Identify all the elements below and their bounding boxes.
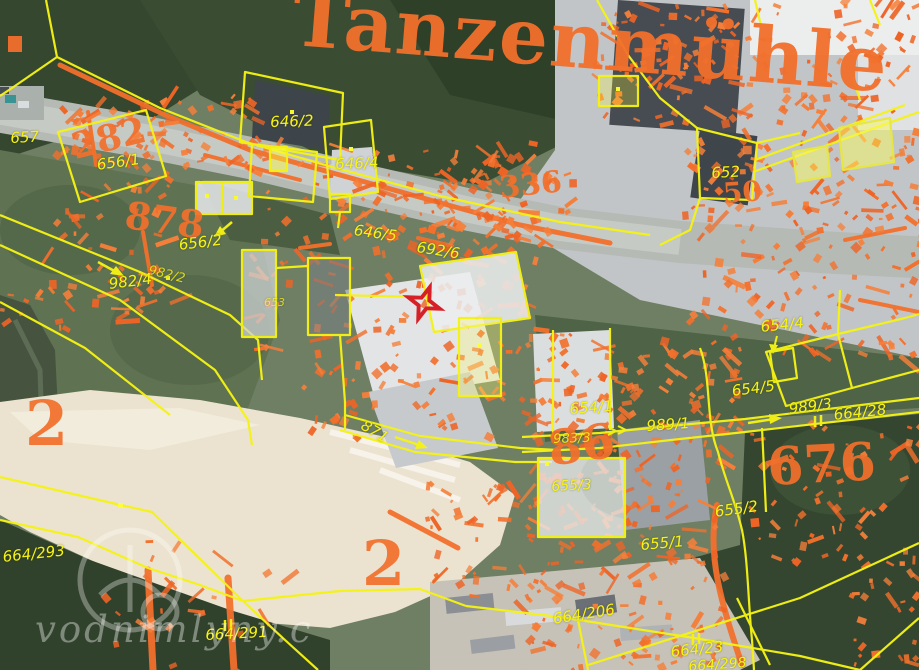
aerial-photo-layer xyxy=(0,0,919,670)
aerial-map[interactable]: 222828783365086676 Tanzenmühle 657656/16… xyxy=(0,0,919,670)
